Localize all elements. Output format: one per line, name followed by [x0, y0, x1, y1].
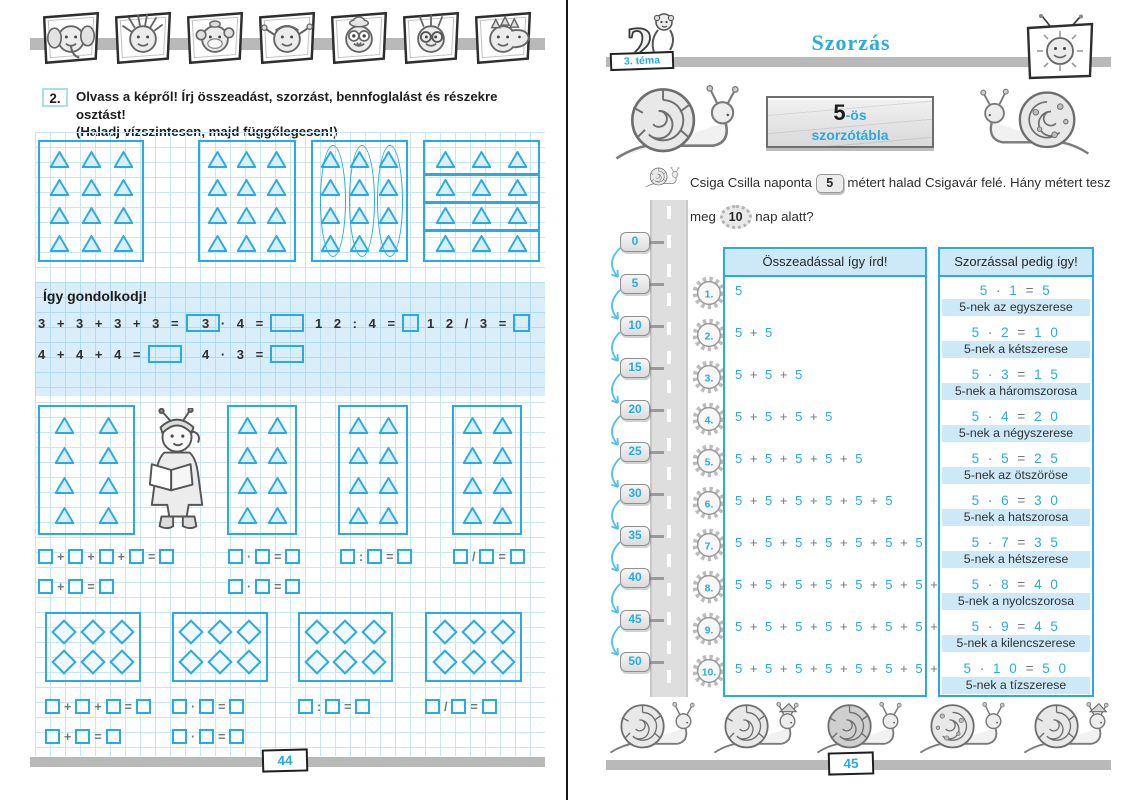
problem-text: meg — [690, 209, 716, 224]
task-number-badge: 6. — [692, 486, 726, 520]
triangle-icon — [487, 500, 517, 530]
answer-box — [199, 729, 214, 744]
task-number-badge: 8. — [692, 570, 726, 604]
diamond-icon — [50, 617, 79, 647]
addition-table: Összeadással így írd! 55 + 55 + 5 + 55 +… — [723, 247, 927, 697]
triangle-picture-box — [198, 140, 296, 262]
exercise-number: 2. — [42, 88, 68, 107]
operator: / — [444, 700, 447, 714]
triangle-icon — [75, 145, 107, 173]
triangle-icon — [464, 229, 500, 257]
operator: : — [317, 700, 321, 714]
operator: = — [125, 700, 132, 714]
multiple-label: 5-nek az ötszöröse — [942, 467, 1090, 484]
triangle-icon — [499, 229, 535, 257]
page-number: 44 — [262, 748, 309, 772]
sum-row: 5 + 5 + 5 + 5 + 5 + 5 + 5 — [735, 535, 923, 550]
diamond-icon — [459, 617, 488, 647]
triangle-icon — [87, 440, 131, 470]
triangle-icon — [487, 470, 517, 500]
operator: + — [57, 580, 64, 594]
triangle-icon — [499, 201, 535, 229]
diamond-icon — [360, 647, 388, 677]
triangle-icon — [262, 173, 291, 201]
triangle-icon — [232, 145, 261, 173]
svg-text:3.: 3. — [705, 373, 714, 384]
diamond-icon — [79, 617, 108, 647]
triangle-icon — [343, 500, 373, 530]
example-expression: 1 2 : 4 = — [315, 316, 399, 331]
triangle-icon — [43, 201, 75, 229]
snail-icon — [606, 700, 701, 762]
triangle-icon — [203, 173, 232, 201]
answer-box — [136, 699, 151, 714]
answer-box — [425, 699, 440, 714]
product-row: 5 · 4 = 2 0 — [940, 409, 1092, 424]
operator: = — [274, 580, 281, 594]
diamond-picture-box — [172, 612, 268, 682]
triangle-icon — [75, 229, 107, 257]
answer-box — [75, 729, 90, 744]
answer-box — [285, 549, 300, 564]
task-number-badge: 5. — [692, 444, 726, 478]
milestone-tick — [648, 367, 664, 370]
column-oval — [349, 145, 375, 257]
milestone-sign: 25 — [620, 442, 650, 462]
milestone-sign: 40 — [620, 568, 650, 588]
product-row: 5 · 1 = 5 — [940, 283, 1092, 298]
answer-box — [451, 699, 466, 714]
answer-box — [99, 579, 114, 594]
blank-equation: ·= — [228, 578, 300, 595]
triangle-icon — [487, 440, 517, 470]
example-equation: 1 2 : 4 = — [315, 314, 419, 332]
milestone-tick — [648, 409, 664, 412]
blank-equation: +++= — [38, 548, 174, 565]
answer-box — [172, 729, 187, 744]
triangle-picture-box — [423, 140, 540, 262]
multiple-label: 5-nek a hatszorosa — [942, 509, 1090, 526]
answer-box — [479, 549, 494, 564]
triangle-icon — [464, 173, 500, 201]
milestone-tick — [648, 283, 664, 286]
triangle-picture-box — [38, 140, 144, 262]
milestone-sign: 30 — [620, 484, 650, 504]
snail-icon — [972, 86, 1094, 164]
problem-text: nap alatt? — [755, 209, 813, 224]
milestone-tick — [648, 661, 664, 664]
example-expression: 3 · 4 = — [202, 316, 267, 331]
multiplication-table: Szorzással pedig így! 5 · 1 = 55-nek az … — [938, 247, 1094, 697]
triangle-icon — [457, 410, 487, 440]
multiple-label: 5-nek a hétszerese — [942, 551, 1090, 568]
example-expression: 4 · 3 = — [202, 347, 267, 362]
milestone-sign: 20 — [620, 400, 650, 420]
product-row: 5 · 3 = 1 5 — [940, 367, 1092, 382]
diamond-icon — [234, 617, 263, 647]
svg-text:4.: 4. — [705, 415, 714, 426]
operator: + — [87, 550, 94, 564]
sun-stamp-icon — [1020, 14, 1100, 87]
think-title: Így gondolkodj! — [43, 288, 147, 304]
triangle-icon — [107, 201, 139, 229]
triangle-icon — [43, 470, 87, 500]
product-row: 5 · 7 = 3 5 — [940, 535, 1092, 550]
triangle-icon — [43, 145, 75, 173]
answer-box — [45, 729, 60, 744]
theme-label: 3. téma — [610, 51, 675, 71]
milestone-tick — [648, 451, 664, 454]
diamond-icon — [459, 647, 488, 677]
answer-box — [99, 549, 114, 564]
reading-kid-character-icon — [136, 408, 218, 537]
diamond-icon — [303, 647, 331, 677]
triangle-icon — [487, 410, 517, 440]
milestone-sign: 0 — [620, 232, 650, 252]
triangle-picture-box — [338, 405, 408, 535]
triangle-icon — [43, 229, 75, 257]
answer-box — [482, 699, 497, 714]
answer-box — [510, 549, 525, 564]
triangle-icon — [373, 410, 403, 440]
task-number-badge: 1. — [692, 276, 726, 310]
blank-equation: ·= — [172, 728, 244, 745]
operator: + — [118, 550, 125, 564]
sum-row: 5 + 5 — [735, 325, 772, 340]
product-row: 5 · 2 = 1 0 — [940, 325, 1092, 340]
triangle-icon — [203, 201, 232, 229]
triangle-icon — [343, 440, 373, 470]
answer-box — [367, 549, 382, 564]
milestone-sign: 15 — [620, 358, 650, 378]
example-equation: 4 + 4 + 4 = — [38, 345, 182, 363]
answer-box — [298, 699, 313, 714]
operator: / — [472, 550, 475, 564]
operator: = — [218, 700, 225, 714]
answer-box — [270, 345, 304, 363]
row-divider-line — [424, 201, 539, 204]
diamond-picture-box — [425, 612, 522, 682]
svg-text:7.: 7. — [705, 541, 714, 552]
stamp-girl-icon — [254, 8, 320, 73]
answer-box — [172, 699, 187, 714]
example-expression: 3 + 3 + 3 + 3 = — [38, 316, 183, 331]
milestone-value-badge: 5 — [816, 174, 844, 193]
diamond-icon — [107, 617, 136, 647]
triangle-icon — [373, 470, 403, 500]
answer-box — [255, 549, 270, 564]
diamond-icon — [206, 647, 235, 677]
sign-number: 5 — [833, 100, 845, 125]
diamond-icon — [488, 647, 517, 677]
multiple-label: 5-nek az egyszerese — [942, 299, 1090, 316]
svg-text:5.: 5. — [705, 457, 714, 468]
answer-box — [229, 729, 244, 744]
answer-box — [45, 699, 60, 714]
road-graphic — [650, 200, 688, 697]
triangle-icon — [464, 201, 500, 229]
triangle-icon — [457, 500, 487, 530]
answer-box — [148, 345, 182, 363]
triangle-icon — [87, 470, 131, 500]
triangle-icon — [262, 500, 292, 530]
multiplication-table-header: Szorzással pedig így! — [940, 249, 1092, 277]
triangle-icon — [262, 201, 291, 229]
operator: = — [344, 700, 351, 714]
answer-box — [325, 699, 340, 714]
triangle-icon — [262, 470, 292, 500]
answer-box — [68, 549, 83, 564]
snail-icon — [710, 700, 805, 762]
triangle-icon — [343, 470, 373, 500]
multiple-label: 5-nek a kétszerese — [942, 341, 1090, 358]
book-spread: 2. Olvass a képről! Írj összeadást, szor… — [0, 0, 1134, 800]
answer-box — [513, 314, 530, 332]
answer-box — [228, 579, 243, 594]
example-expression: 1 2 / 3 = — [427, 316, 510, 331]
triangle-icon — [203, 229, 232, 257]
days-value-badge: 10 — [720, 205, 752, 229]
chapter-title: Szorzás — [678, 30, 1024, 56]
stamp-dino-icon — [470, 8, 536, 73]
page-divider — [566, 0, 568, 800]
triangle-icon — [343, 410, 373, 440]
example-expression: 4 + 4 + 4 = — [38, 347, 145, 362]
product-row: 5 · 6 = 3 0 — [940, 493, 1092, 508]
task-number-badge: 4. — [692, 402, 726, 436]
task-number-badge: 3. — [692, 360, 726, 394]
diamond-picture-box — [45, 612, 141, 682]
sum-row: 5 + 5 + 5 — [735, 367, 802, 382]
triangle-icon — [262, 229, 291, 257]
example-equation: 3 + 3 + 3 + 3 = — [38, 314, 220, 332]
operator: + — [64, 730, 71, 744]
triangle-icon — [107, 173, 139, 201]
operator: + — [94, 700, 101, 714]
left-page: 2. Olvass a képről! Írj összeadást, szor… — [0, 0, 566, 800]
diamond-icon — [79, 647, 108, 677]
multiple-label: 5-nek a háromszorosa — [942, 383, 1090, 400]
triangle-icon — [457, 440, 487, 470]
small-snail-icon — [644, 166, 682, 194]
answer-box — [75, 699, 90, 714]
sum-row: 5 — [735, 283, 742, 298]
operator: + — [57, 550, 64, 564]
answer-box — [270, 314, 304, 332]
triangle-icon — [428, 173, 464, 201]
answer-box — [453, 549, 468, 564]
stamp-monkey-icon — [182, 8, 248, 73]
sum-row: 5 + 5 + 5 + 5 + 5 — [735, 451, 862, 466]
product-row: 5 · 8 = 4 0 — [940, 577, 1092, 592]
milestone-sign: 35 — [620, 526, 650, 546]
operator: · — [191, 730, 195, 744]
product-row: 5 · 5 = 2 5 — [940, 451, 1092, 466]
triangle-icon — [232, 500, 262, 530]
operator: · — [247, 580, 251, 594]
diamond-icon — [107, 647, 136, 677]
answer-box — [255, 579, 270, 594]
multiple-label: 5-nek a négyszerese — [942, 425, 1090, 442]
milestone-tick — [648, 241, 664, 244]
answer-box — [285, 579, 300, 594]
snail-icon — [916, 700, 1011, 762]
blank-equation: ++= — [45, 698, 151, 715]
diamond-icon — [360, 617, 388, 647]
svg-text:2.: 2. — [705, 331, 714, 342]
diamond-icon — [177, 617, 206, 647]
times-table-sign: 5-ös szorzótábla — [766, 96, 934, 148]
triangle-icon — [499, 173, 535, 201]
diamond-icon — [488, 617, 517, 647]
diamond-icon — [331, 617, 359, 647]
task-number-badge: 7. — [692, 528, 726, 562]
right-page: Szorzás 2 3. téma 5-ös szorzótábla Csiga… — [568, 0, 1134, 800]
milestone-tick — [648, 577, 664, 580]
answer-box — [38, 549, 53, 564]
triangle-icon — [107, 145, 139, 173]
triangle-icon — [43, 500, 87, 530]
triangle-icon — [428, 201, 464, 229]
diamond-icon — [234, 647, 263, 677]
triangle-icon — [232, 173, 261, 201]
blank-equation: += — [45, 728, 121, 745]
multiple-label: 5-nek a nyolcszorosa — [942, 593, 1090, 610]
triangle-picture-box — [227, 405, 297, 535]
triangle-icon — [232, 229, 261, 257]
answer-box — [106, 729, 121, 744]
svg-text:6.: 6. — [705, 499, 714, 510]
snail-icon — [610, 82, 748, 170]
page-number: 45 — [828, 751, 875, 775]
triangle-icon — [232, 410, 262, 440]
example-equation: 1 2 / 3 = — [427, 314, 530, 332]
answer-box — [159, 549, 174, 564]
grid-paper: Így gondolkodj! 3 + 3 + 3 + 3 =3 · 4 =1 … — [35, 132, 545, 756]
diamond-picture-box — [298, 612, 393, 682]
milestone-tick — [648, 535, 664, 538]
triangle-icon — [232, 470, 262, 500]
sum-row: 5 + 5 + 5 + 5 — [735, 409, 832, 424]
operator: = — [148, 550, 155, 564]
operator: = — [218, 730, 225, 744]
answer-box — [38, 579, 53, 594]
triangle-icon — [43, 173, 75, 201]
multiple-label: 5-nek a tízszerese — [942, 677, 1090, 694]
stamp-owl-icon — [326, 8, 392, 73]
svg-text:8.: 8. — [705, 583, 714, 594]
answer-box — [68, 579, 83, 594]
answer-box — [397, 549, 412, 564]
task-number-badge: 10. — [692, 654, 726, 688]
blank-equation: /= — [453, 548, 525, 565]
diamond-icon — [331, 647, 359, 677]
diamond-icon — [430, 617, 459, 647]
stamp-elephant-icon — [38, 8, 104, 73]
triangle-picture-box — [311, 140, 408, 262]
blank-equation: += — [38, 578, 114, 595]
milestone-tick — [648, 325, 664, 328]
triangle-icon — [428, 229, 464, 257]
sign-suffix: -ös — [846, 107, 867, 123]
milestone-sign: 50 — [620, 652, 650, 672]
milestone-tick — [648, 493, 664, 496]
triangle-icon — [232, 201, 261, 229]
sum-row: 5 + 5 + 5 + 5 + 5 + 5 — [735, 493, 893, 508]
milestone-sign: 10 — [620, 316, 650, 336]
row-divider-line — [424, 173, 539, 176]
answer-box — [402, 314, 419, 332]
operator: = — [274, 550, 281, 564]
diamond-icon — [50, 647, 79, 677]
answer-box — [106, 699, 121, 714]
operator: = — [94, 730, 101, 744]
triangle-icon — [87, 410, 131, 440]
problem-text: Csiga Csilla naponta — [690, 175, 812, 190]
triangle-icon — [232, 440, 262, 470]
answer-box — [229, 699, 244, 714]
operator: · — [247, 550, 251, 564]
triangle-icon — [262, 145, 291, 173]
triangle-icon — [43, 440, 87, 470]
operator: = — [386, 550, 393, 564]
milestone-sign: 45 — [620, 610, 650, 630]
example-equation: 4 · 3 = — [202, 345, 304, 363]
answer-box — [129, 549, 144, 564]
instruction-line1: Olvass a képről! Írj összeadást, szorzás… — [76, 89, 497, 122]
blank-equation: /= — [425, 698, 497, 715]
blank-equation: := — [340, 548, 412, 565]
snail-icon — [1020, 700, 1115, 762]
diamond-icon — [430, 647, 459, 677]
triangle-icon — [87, 500, 131, 530]
triangle-picture-box — [452, 405, 522, 535]
task-number-badge: 9. — [692, 612, 726, 646]
stamp-kid-glasses-icon — [398, 8, 464, 73]
svg-text:1.: 1. — [705, 289, 714, 300]
triangle-icon — [373, 440, 403, 470]
triangle-icon — [262, 410, 292, 440]
word-problem-line1: Csiga Csilla naponta 5 métert halad Csig… — [690, 174, 1114, 193]
sum-row: 5 + 5 + 5 + 5 + 5 + 5 + 5 + 5 — [735, 577, 953, 592]
triangle-icon — [203, 145, 232, 173]
column-oval — [320, 145, 346, 257]
triangle-icon — [464, 145, 500, 173]
problem-text: métert halad Csigavár felé. Hány métert … — [847, 175, 1110, 190]
triangle-icon — [499, 145, 535, 173]
triangle-icon — [75, 201, 107, 229]
answer-box — [340, 549, 355, 564]
word-problem-line2: meg 10 nap alatt? — [690, 205, 1114, 229]
triangle-icon — [43, 410, 87, 440]
operator: = — [470, 700, 477, 714]
operator: = — [498, 550, 505, 564]
sign-word: szorzótábla — [768, 127, 932, 143]
task-number-badge: 2. — [692, 318, 726, 352]
triangle-icon — [457, 470, 487, 500]
triangle-icon — [373, 500, 403, 530]
stamp-spiky-boy-icon — [110, 8, 176, 73]
addition-table-header: Összeadással így írd! — [725, 249, 925, 277]
product-row: 5 · 9 = 4 5 — [940, 619, 1092, 634]
operator: = — [87, 580, 94, 594]
milestone-tick — [648, 619, 664, 622]
triangle-icon — [262, 440, 292, 470]
product-row: 5 · 1 0 = 5 0 — [940, 661, 1092, 676]
operator: + — [64, 700, 71, 714]
operator: : — [359, 550, 363, 564]
theme-badge: 2 3. téma — [612, 8, 692, 80]
